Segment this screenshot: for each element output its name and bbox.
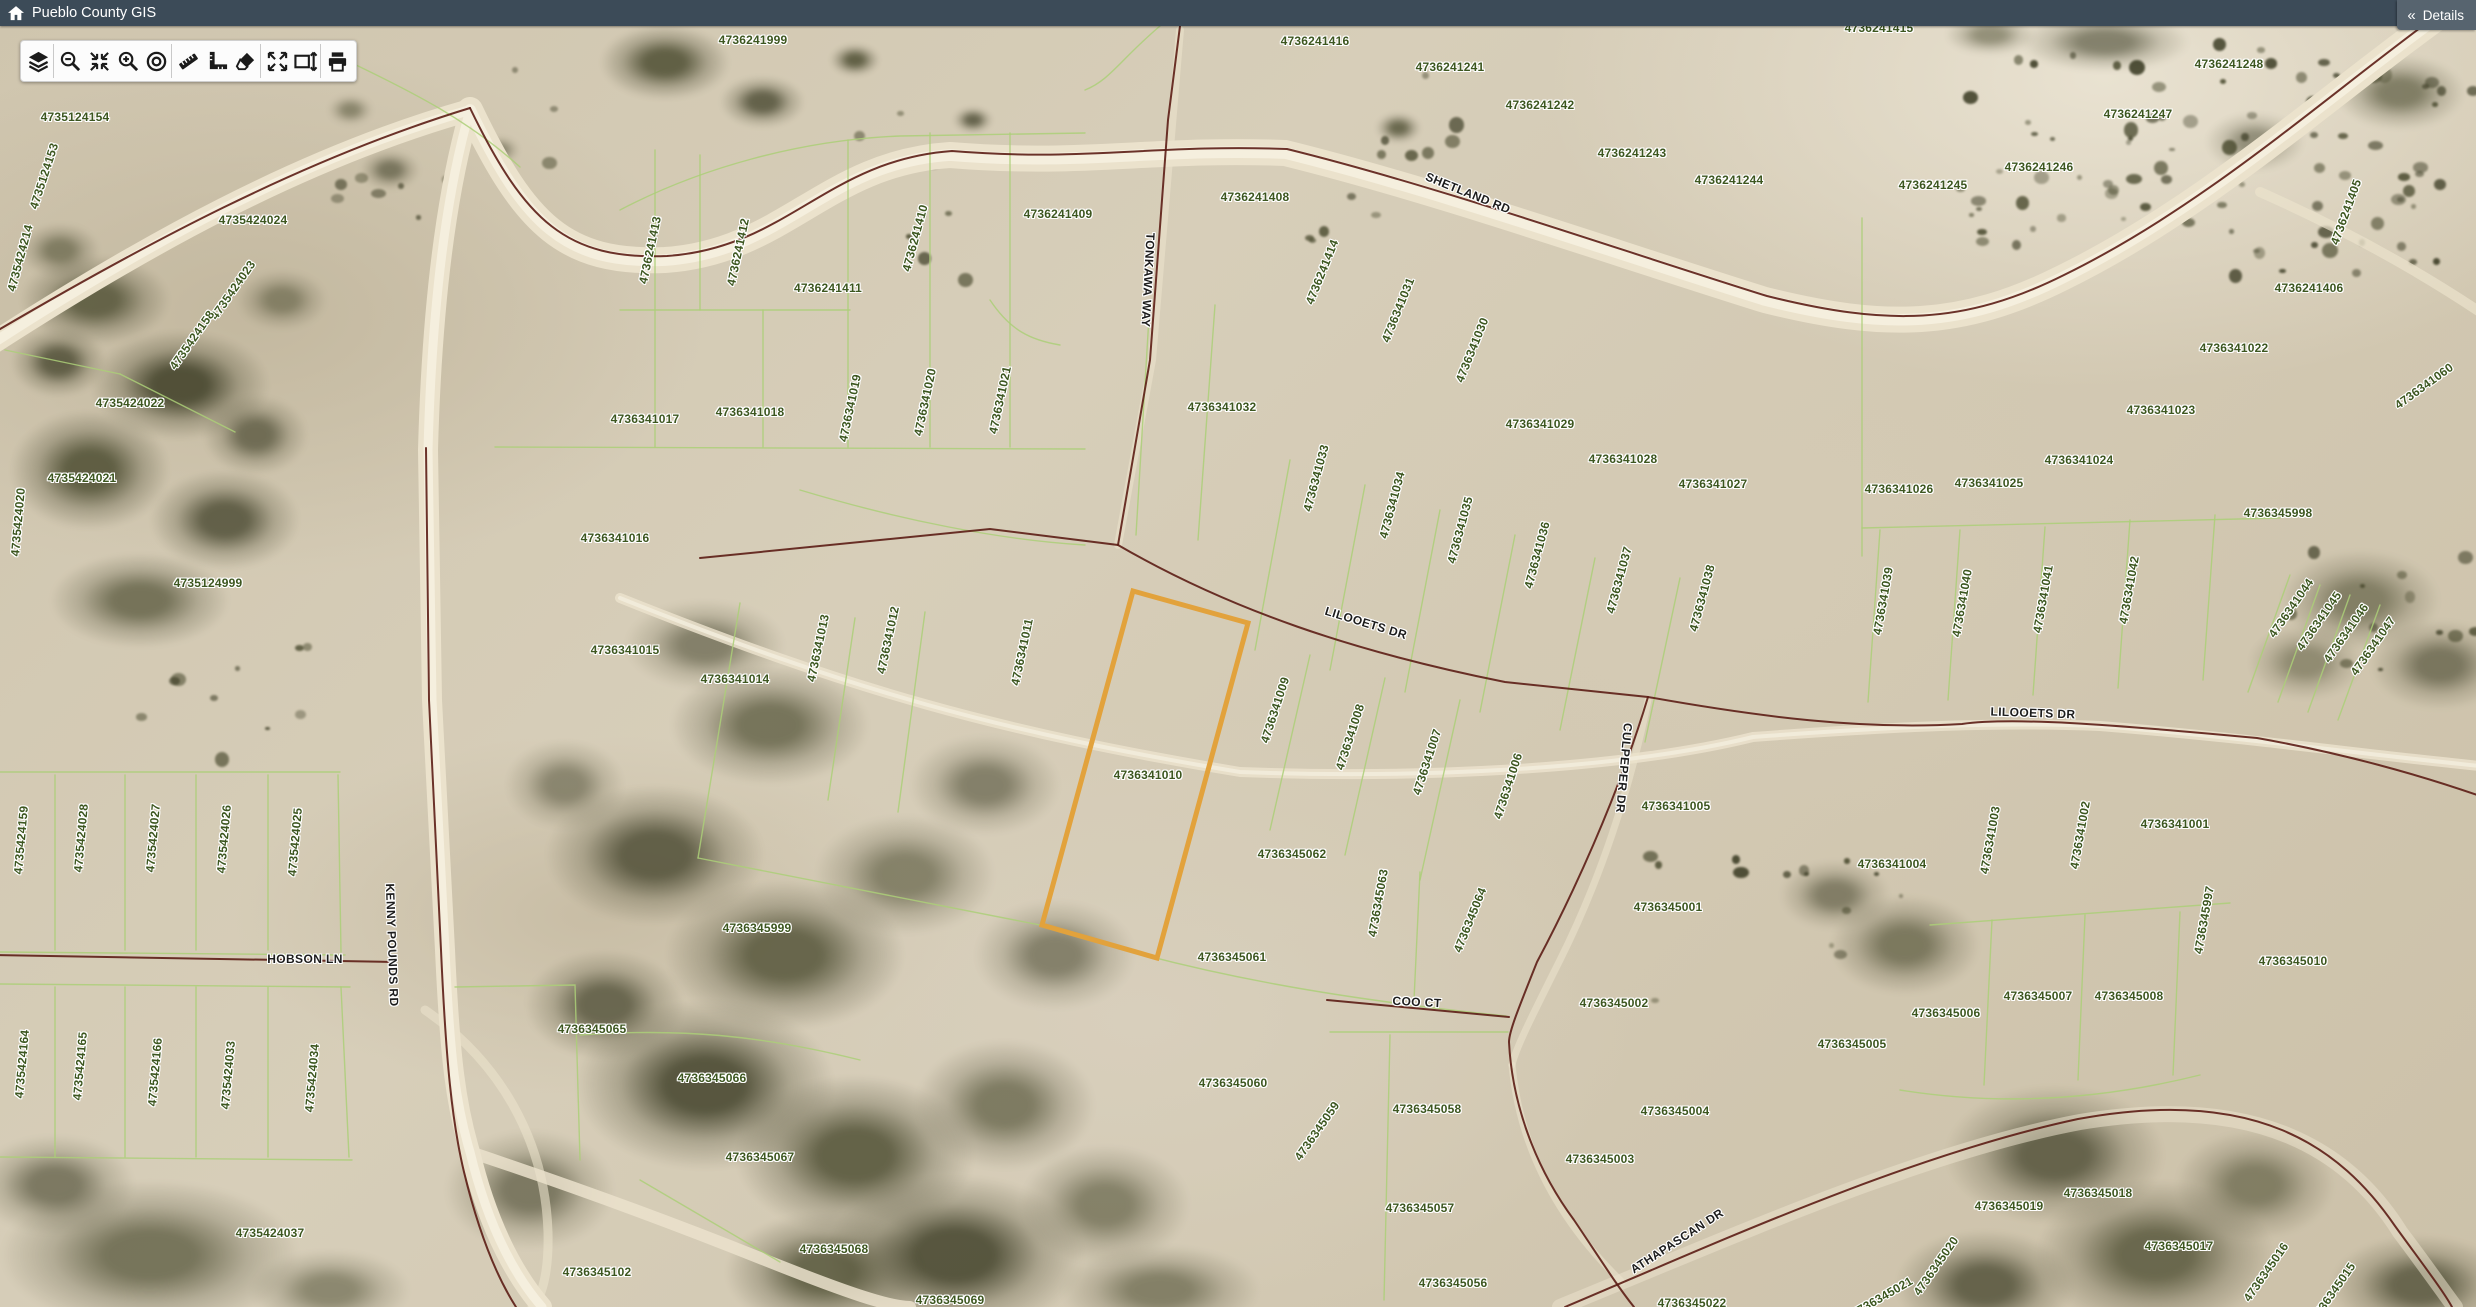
parcel-label: 4736241247 [2104,107,2173,121]
parcel-label: 4736241248 [2195,57,2264,71]
parcel-label: 4736341017 [611,412,680,426]
scrub-speckle [2467,86,2476,95]
vegetation-blob [1895,1230,2075,1307]
scrub-speckle [2012,240,2021,250]
parcel-label: 4736345066 [678,1071,747,1085]
scrub-speckle [2285,608,2297,620]
parcel-label: 4736341041 [2030,564,2056,634]
home-icon[interactable] [8,6,24,21]
scrub-speckle [2213,38,2226,51]
vegetation-blob [600,25,730,100]
road-label: LILOOETS DR [1323,604,1408,642]
scrub-speckle [2405,591,2416,602]
scrub-speckle [2229,229,2233,233]
parcel-label: 4736345102 [563,1265,632,1279]
scrub-speckle [932,158,940,165]
scrub-speckle [854,131,864,141]
scrub-speckle [1969,213,1973,216]
parcel-label: 4736345006 [1912,1006,1981,1020]
scrub-speckle [2409,259,2417,265]
parcel-label: 4735424026 [214,804,234,874]
scrub-speckle [550,106,558,112]
parcel-label: 4736341002 [2067,800,2093,870]
parcel-label: 4736345001 [1634,900,1703,914]
scrub-speckle [2169,148,2175,152]
parcel-label: 4736345015 [2308,1260,2359,1307]
parcel-label: 4736241412 [724,217,752,287]
vegetation-blob [825,1175,1085,1307]
parcel-label: 4736241413 [636,215,664,285]
scrub-speckle [2103,180,2113,188]
scrub-speckle [2154,161,2168,175]
scrub-speckle [1971,196,1986,206]
layers-button[interactable] [25,44,54,78]
parcel-label: 4736341016 [581,531,650,545]
parcel-label: 4736341034 [1376,470,1407,540]
parcel-label: 4735424158 [167,308,218,372]
scrub-speckle [2366,70,2382,82]
scrub-speckle [416,215,421,219]
road-label: ATHAPASCAN DR [1628,1206,1726,1277]
scrub-speckle [2146,114,2158,123]
vegetation-blob [525,950,685,1060]
parcel-label: 4736345068 [800,1242,869,1256]
scrub-speckle [2369,623,2378,632]
parcel-label: 4736341019 [836,373,864,443]
parcel-label: 4736345056 [1419,1276,1488,1290]
parcel-label: 4736345007 [2004,989,2073,1003]
scrub-speckle [1842,907,1851,914]
parcel-label: 4736341031 [1379,276,1418,345]
vegetation-blob [2280,550,2440,650]
parcel-label: 4736345067 [726,1150,795,1164]
parcel-label: 4736345064 [1451,886,1490,955]
parcel-label: 4736345060 [1199,1076,1268,1090]
scrub-speckle [2360,584,2365,589]
scrub-speckle [295,645,304,652]
scrub-speckle [303,643,312,651]
parcel-label: 4736345057 [1386,1201,1455,1215]
eraser-icon [234,50,257,73]
vegetation-blob [1060,1245,1260,1307]
scrub-speckle [2296,72,2307,83]
scrub-speckle [1305,235,1314,241]
scrub-speckle [2140,203,2151,211]
parcel-label: 4736241411 [794,281,862,295]
parcel-label: 4736341042 [2116,555,2142,625]
zoom-extent-icon [88,50,111,73]
scrub-speckle [2175,200,2189,210]
scrub-speckle [2129,60,2145,75]
scrub-speckle [2128,136,2133,141]
scrub-speckle [1956,186,1965,193]
boundary-line-layer [0,8,2476,1307]
parcel-label: 4735424023 [208,258,259,322]
scrub-speckle [2352,269,2361,277]
measure-area-icon [206,50,229,73]
scrub-speckle [1732,855,1740,864]
scrub-speckle [171,673,185,686]
vegetation-blob [545,785,765,925]
scrub-speckle [295,710,306,719]
parcel-label: 4736341038 [1686,563,1717,633]
parcel-label: 4736345059 [1292,1099,1343,1163]
scrub-speckle [918,252,932,265]
app-title: Pueblo County GIS [32,5,156,21]
scrub-speckle [1799,865,1809,875]
scrub-speckle [2050,137,2055,140]
parcel-label: 4736341045 [2294,589,2345,653]
parcel-label: 4736345018 [2064,1186,2133,1200]
scrub-speckle [1834,950,1846,959]
scrub-speckle [2217,202,2226,209]
parcel-label: 4736341040 [1949,568,1975,638]
zoom-in-button[interactable] [114,44,143,78]
scrub-speckle [2338,133,2347,139]
vegetation-blob [1020,1145,1190,1265]
scrub-speckle [2340,659,2353,668]
parcel-label: 4736345005 [1818,1037,1887,1051]
app-header: Pueblo County GIS [0,0,2476,26]
parcel-label: 4736341007 [1410,727,1445,797]
vegetation-blob [815,815,995,935]
scrub-speckle [2322,243,2338,259]
scrub-speckle [2415,171,2424,177]
pueblo-county-gis-app: 4735124154473512415347354242144735424024… [0,0,2476,1307]
parcel-label: 4736341005 [1642,799,1711,813]
vegetation-blob [915,1040,1095,1170]
scrub-speckle [958,273,973,287]
scrub-speckle [1804,872,1809,877]
vegetation-blob [445,1130,615,1250]
vegetation-blob [2248,625,2363,700]
vegetation-blob [735,1075,975,1235]
scrub-speckle [2070,52,2077,59]
scrub-speckle [2152,82,2166,92]
vegetation-blob [237,270,327,330]
vegetation-blob [480,136,520,164]
scrub-speckle [2310,132,2317,138]
parcel-label: 4736341003 [1977,805,2003,875]
scrub-speckle [2025,120,2031,125]
parcel-label: 4736241406 [2275,281,2344,295]
scrub-speckle [2469,627,2476,636]
measure-distance-icon [177,50,200,73]
parcel-label: 4736341013 [804,613,832,683]
scrub-speckle [265,727,270,730]
scrub-speckle [2229,269,2242,283]
parcel-label: 4736345019 [1975,1199,2044,1213]
parcel-label: 4736241999 [719,33,788,47]
parcel-label: 4736241245 [1899,178,1968,192]
vegetation-blob [20,255,170,345]
scrub-speckle [1347,193,1356,200]
scrub-speckle [906,234,912,239]
parcel-label: 4736341036 [1521,520,1552,590]
road-label: KENNY POUNDS RD [383,883,401,1007]
vegetation-blob [575,1000,835,1170]
parcel-label: 4736241243 [1598,146,1667,160]
parcel-label: 4736241405 [2328,177,2365,246]
parcel-label: 4736341021 [986,365,1014,435]
parcel-label: 4736341060 [2392,360,2456,412]
parcel-label: 4735424165 [70,1031,90,1101]
parcel-label: 4736341046 [2321,601,2372,665]
parcel-label: 4736341029 [1506,417,1575,431]
parcel-label: 4736341006 [1491,751,1526,821]
scrub-speckle [210,695,218,702]
parcel-label: 4736345997 [2191,885,2217,955]
scrub-speckle [2105,188,2118,199]
scrub-speckle [2161,175,2172,184]
parcel-label: 4736241242 [1506,98,1575,112]
parcel-label: 4736241409 [1024,207,1093,221]
scrub-speckle [1996,169,2003,174]
scrub-speckle [2368,141,2383,150]
scrub-speckle [2306,96,2319,109]
parcel-label: 4736345004 [1641,1104,1710,1118]
parcel-label: 4735424034 [302,1043,322,1113]
parcel-label: 4736341025 [1955,476,2024,490]
parcel-label: 4735424166 [145,1037,165,1107]
parcel-label: 4736341001 [2141,817,2210,831]
locate-icon [145,50,168,73]
scrub-speckle [1309,238,1316,243]
parcel-label: 4736241416 [1281,34,1350,48]
parcel-label: 4735124999 [174,576,243,590]
parcel-label: 4736345022 [1658,1296,1727,1307]
parcel-label: 4735424164 [12,1029,32,1099]
parcel-label: 4736341014 [701,672,770,686]
scrub-speckle [2077,175,2082,180]
parcel-label: 4736341015 [591,643,660,657]
vegetation-blob [1945,1085,2165,1225]
scrub-speckle [1381,136,1389,144]
parcel-label: 4736341033 [1300,443,1331,513]
road-label: CULPEPER DR [1613,722,1635,813]
scrub-speckle [1977,229,1986,236]
parcel-label: 4736341026 [1865,482,1934,496]
scrub-speckle [1655,861,1663,869]
scrub-speckle [2241,133,2248,141]
scrub-speckle [2397,242,2407,251]
vegetation-blob [2175,1130,2335,1240]
collapse-left-icon: « [2407,8,2415,23]
parcel-label: 4735424037 [236,1226,305,1240]
map-vector-overlay [0,0,2476,1307]
parcel-label: 4736345020 [1911,1234,1962,1298]
measure-distance-button[interactable] [174,44,203,78]
scrub-speckle [2247,112,2258,119]
scrub-speckle [1844,858,1850,863]
vegetation-blob [20,223,100,278]
scrub-speckle [2378,668,2383,672]
select-extent-button[interactable] [292,44,321,78]
scrub-speckle [1449,117,1464,132]
scrub-speckle [2030,226,2036,232]
road-label: TONKAWA WAY [1139,232,1158,327]
parcel-label: 4736241410 [899,203,930,273]
parcel-label: 4736345002 [1580,996,1649,1010]
parcel-label: 4736341032 [1188,400,1257,414]
vegetation-blob [2330,1235,2476,1307]
scrub-speckle [2433,258,2440,265]
parcel-label: 4736341018 [716,405,785,419]
parcel-label: 4735124154 [41,110,110,124]
scrub-speckle [2124,122,2138,138]
locate-button[interactable] [143,44,172,78]
parcel-label: 4736341030 [1453,316,1492,385]
vegetation-blob [11,327,106,397]
scrub-speckle [2448,630,2463,643]
scrub-speckle [2377,67,2392,83]
zoom-to-extent-button[interactable] [85,44,114,78]
parcel-label: 4736345021 [1849,1274,1916,1307]
parcel-label: 4736341010 [1114,768,1183,782]
scrub-speckle [2371,217,2384,230]
vegetation-blob [720,76,805,128]
scrub-speckle [371,189,386,198]
scrub-speckle [1643,851,1658,862]
vegetation-blob [150,470,300,570]
scrub-speckle [1829,943,1834,948]
vegetation-blob [910,735,1060,835]
scrub-speckle [169,677,180,685]
scrub-speckle [1733,867,1749,878]
details-panel-toggle[interactable]: « Details [2397,0,2476,30]
scrub-speckle [2411,204,2417,209]
scrub-speckle [235,666,241,671]
scrub-speckle [2422,84,2429,89]
scrub-speckle [2233,178,2238,181]
parcel-label: 4736341020 [911,367,939,437]
scrub-speckle [2391,194,2406,205]
parcel-label: 4736241414 [1303,238,1342,307]
measure-area-button[interactable] [203,44,232,78]
print-button[interactable] [323,44,352,78]
parcel-label: 4736241241 [1416,60,1485,74]
parcel-label: 4736345017 [2145,1239,2214,1253]
parcel-label: 4736345998 [2244,506,2313,520]
parcel-label: 4736341022 [2200,341,2269,355]
parcel-label: 4736345016 [2241,1240,2292,1304]
scrub-speckle [2253,249,2260,253]
scrub-speckle [2016,196,2029,210]
erase-button[interactable] [232,44,261,78]
vegetation-blob [953,107,993,133]
scrub-speckle [2220,79,2226,84]
parcel-label: 4736341039 [1870,566,1896,636]
vegetation-blob [203,395,308,475]
vegetation-blob [0,1180,300,1307]
scrub-speckle [1422,147,1434,159]
scrub-speckle [2458,551,2473,564]
parcel-label: 4736345058 [1393,1102,1462,1116]
scrub-speckle [2265,58,2277,68]
zoom-out-icon [59,50,82,73]
scrub-speckle [398,183,404,189]
vegetation-blob [2035,1180,2275,1307]
scrub-speckle [2318,59,2330,66]
parcel-label: 4736345999 [723,921,792,935]
scrub-speckle [2222,140,2237,155]
map-toolbar [20,40,357,82]
scrub-speckle [1976,237,1989,246]
scrub-speckle [1445,135,1460,148]
map-canvas[interactable]: 4735124154473512415347354242144735424024… [0,0,2476,1307]
scrub-speckle [2437,86,2446,96]
parcel-label: 4735124153 [27,141,62,211]
road-label: COO CT [1392,994,1442,1011]
vegetation-blob [360,150,420,190]
extent-box-icon [293,50,318,73]
vegetation-blob [2335,55,2465,130]
parcel-label: 4736341009 [1258,675,1293,745]
vegetation-blob [90,330,270,440]
parcel-label: 4736241244 [1695,173,1764,187]
vegetation-blob [250,1250,410,1307]
scrub-speckle [2403,185,2416,197]
zoom-in-icon [117,50,140,73]
scrub-speckle [1874,872,1879,876]
road-layer [0,12,2476,1307]
vegetation-blob [328,95,373,125]
scrub-speckle [2425,77,2439,88]
scrub-speckle [2254,247,2265,259]
expand-arrows-icon [266,50,289,73]
parcel-label: 4736345008 [2095,989,2164,1003]
vegetation-blob [725,1212,925,1307]
parcel-label: 4735424028 [71,803,91,873]
scrub-speckle [2339,171,2351,180]
vegetation-blob [2205,112,2305,172]
scrub-speckle [926,155,941,169]
zoom-out-button[interactable] [56,44,85,78]
scrub-speckle [2121,217,2126,221]
scrub-speckle [2030,60,2039,68]
parcel-label: 4736345063 [1365,868,1391,938]
vegetation-blob [670,665,870,785]
vegetation-blob [830,44,880,76]
scrub-speckle [2057,214,2065,221]
parcel-label: 4735424021 [48,471,117,485]
scrub-speckle [2434,179,2446,190]
parcel-line-layer [0,26,2380,1300]
parcel-label: 4736341008 [1333,702,1368,772]
scrub-speckle [2397,571,2407,579]
scrub-speckle [1319,226,1330,237]
scrub-speckle [542,157,557,170]
parcel-label: 4736241408 [1221,190,1290,204]
vegetation-blob [665,880,905,1030]
scrub-speckle [2432,102,2439,107]
parcel-label: 4735424033 [218,1040,238,1110]
scrub-speckle [945,211,952,216]
parcel-label: 4736341011 [1008,617,1036,687]
vegetation-blob [625,600,785,690]
scrub-speckle [897,111,903,116]
scrub-speckle [2314,163,2325,173]
scrub-speckle [2126,140,2131,145]
parcel-label: 4735424027 [143,803,163,873]
parcel-label: 4735424214 [4,223,35,293]
scrub-speckle [2308,546,2320,558]
scrub-speckle [2359,239,2366,246]
parcel-label: 4736345069 [916,1293,985,1307]
highlighted-parcel-outline[interactable] [1042,591,1248,958]
full-extent-button[interactable] [263,44,292,78]
parcel-label: 4736341044 [2266,576,2317,640]
